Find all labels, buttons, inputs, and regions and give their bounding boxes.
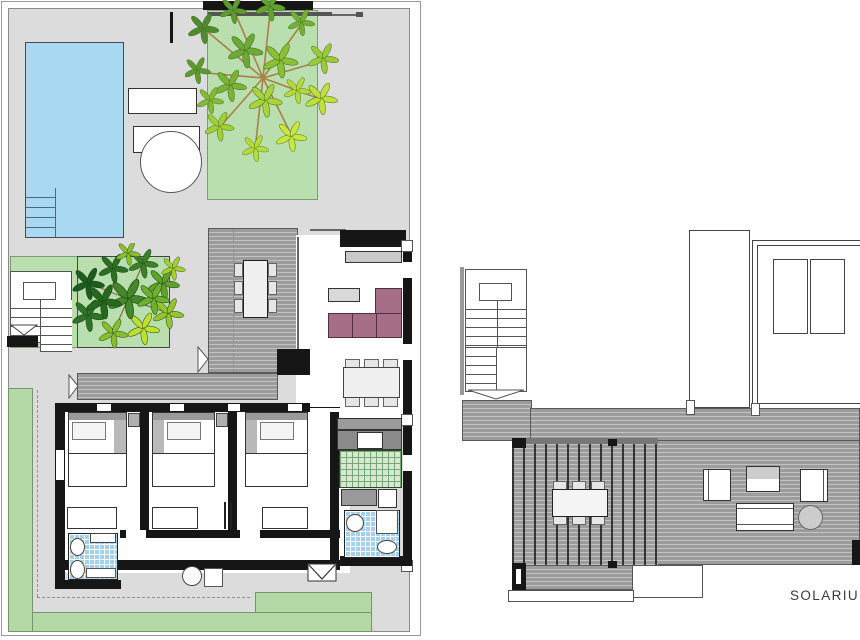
- stairs-direction-arrow: [10, 324, 38, 336]
- headboard: [246, 413, 307, 420]
- window: [170, 404, 184, 411]
- deck-band: [77, 373, 278, 400]
- kitchen-counter: [337, 418, 402, 430]
- patio-table: [182, 566, 202, 586]
- sofa: [328, 313, 402, 338]
- lawn-bottom-band: [32, 612, 372, 632]
- bench: [152, 507, 198, 529]
- sofa-seam: [376, 314, 377, 337]
- floorplan-canvas: SOLARIUM: [0, 0, 860, 640]
- deck-arrow: [68, 374, 79, 399]
- toilet: [377, 540, 397, 554]
- bed: [68, 412, 127, 487]
- wall: [403, 242, 412, 572]
- stairs-steps: [40, 300, 72, 352]
- outdoor-dining-table: [243, 260, 268, 318]
- wall: [356, 12, 363, 17]
- blanket-line: [69, 453, 126, 454]
- dining-chair: [383, 397, 398, 407]
- sofa-chaise: [375, 288, 402, 315]
- vanity: [90, 533, 116, 543]
- pergola-post-slot: [516, 569, 521, 584]
- wall: [140, 412, 149, 530]
- stairs-landing: [479, 283, 512, 301]
- stairs-steps: [465, 301, 527, 348]
- stairs-divider: [497, 301, 498, 348]
- outdoor-chair: [234, 263, 243, 277]
- wall: [120, 530, 340, 538]
- kitchen-sink: [357, 432, 383, 449]
- wall: [55, 403, 65, 585]
- toilet: [70, 538, 85, 556]
- door-opening: [126, 530, 146, 538]
- wall: [340, 230, 406, 247]
- pillar: [401, 414, 413, 426]
- blanket-line: [246, 453, 307, 454]
- outdoor-chair: [234, 299, 243, 313]
- pergola-table: [552, 489, 608, 517]
- toilet: [70, 560, 85, 579]
- wall: [277, 349, 310, 375]
- bench: [67, 507, 117, 529]
- setback-line: [37, 597, 250, 598]
- window: [403, 262, 412, 278]
- solarium-deck-step: [525, 565, 635, 590]
- window: [403, 344, 412, 360]
- lounge-sofa: [736, 503, 794, 531]
- deck-arrow: [197, 346, 209, 373]
- sideboard: [345, 251, 402, 263]
- washbasin: [346, 514, 364, 532]
- bed-side: [153, 420, 164, 454]
- pillar: [401, 240, 413, 252]
- shower-tray: [376, 510, 398, 534]
- outdoor-chair: [234, 281, 243, 295]
- solarium-deck: [530, 408, 860, 441]
- door-opening: [240, 530, 260, 538]
- sofa-seam: [352, 314, 353, 337]
- step-platform: [508, 590, 634, 602]
- dining-chair: [364, 397, 379, 407]
- skylight: [773, 259, 808, 334]
- headboard: [153, 413, 214, 420]
- kitchen-cabinet: [341, 489, 377, 506]
- window: [288, 404, 302, 411]
- armchair: [800, 469, 828, 502]
- nightstand: [216, 413, 228, 427]
- armchair: [703, 469, 731, 501]
- stairs-steps: [465, 348, 497, 392]
- setback-line: [37, 390, 38, 597]
- window: [403, 455, 412, 471]
- door-leaf: [230, 502, 232, 529]
- bush: [68, 243, 186, 358]
- solarium-label: SOLARIUM: [790, 588, 860, 603]
- window: [228, 404, 240, 411]
- wall-outline: [686, 400, 695, 415]
- entry-arrow: [307, 563, 337, 582]
- pillow: [260, 422, 294, 440]
- ground-floor-plan: [0, 0, 430, 640]
- coffee-table: [328, 288, 360, 302]
- window: [97, 404, 111, 411]
- stairs-landing: [23, 282, 56, 300]
- blanket-line: [153, 453, 214, 454]
- pool-steps: [26, 188, 56, 237]
- shower-tray: [86, 568, 116, 578]
- skylight: [810, 259, 845, 334]
- bed: [245, 412, 308, 487]
- kitchen-island: [378, 489, 397, 508]
- nightstand: [128, 413, 140, 427]
- side-table: [746, 466, 780, 492]
- bed: [152, 412, 215, 487]
- pillow: [72, 422, 106, 440]
- outdoor-chair: [268, 281, 277, 295]
- roof-volume: [689, 230, 750, 408]
- lawn-left-band: [8, 388, 33, 632]
- bench: [262, 507, 308, 529]
- lawn-step-band: [255, 592, 372, 613]
- kitchen-floor: [339, 450, 402, 488]
- wall: [55, 580, 121, 589]
- bed-side: [114, 420, 126, 454]
- patio-seat: [204, 568, 223, 587]
- wall-outline: [751, 403, 760, 416]
- dining-chair: [345, 397, 360, 407]
- round-side-table: [798, 505, 823, 530]
- pergola-beam: [512, 438, 658, 444]
- window: [56, 450, 64, 480]
- pillow: [167, 422, 201, 440]
- headboard: [69, 413, 126, 420]
- roof-access-door: [852, 540, 860, 565]
- stairs-side-wall: [460, 267, 464, 395]
- stairs-direction-arrow: [467, 389, 525, 400]
- outdoor-chair: [268, 299, 277, 313]
- bed-side: [246, 420, 257, 454]
- outdoor-chair: [268, 263, 277, 277]
- solarium-deck: [462, 400, 532, 441]
- glass-wall: [297, 237, 299, 352]
- wall: [7, 336, 38, 347]
- big-tree: [185, 0, 340, 170]
- dining-table: [343, 367, 400, 398]
- door-leaf: [224, 502, 226, 529]
- pergola-post: [608, 439, 617, 446]
- step-platform: [632, 565, 703, 598]
- wall: [170, 12, 173, 43]
- roof-volume: [752, 240, 860, 410]
- pergola-post: [608, 561, 617, 568]
- solarium-plan: SOLARIUM: [430, 0, 860, 640]
- pergola-post: [512, 438, 526, 448]
